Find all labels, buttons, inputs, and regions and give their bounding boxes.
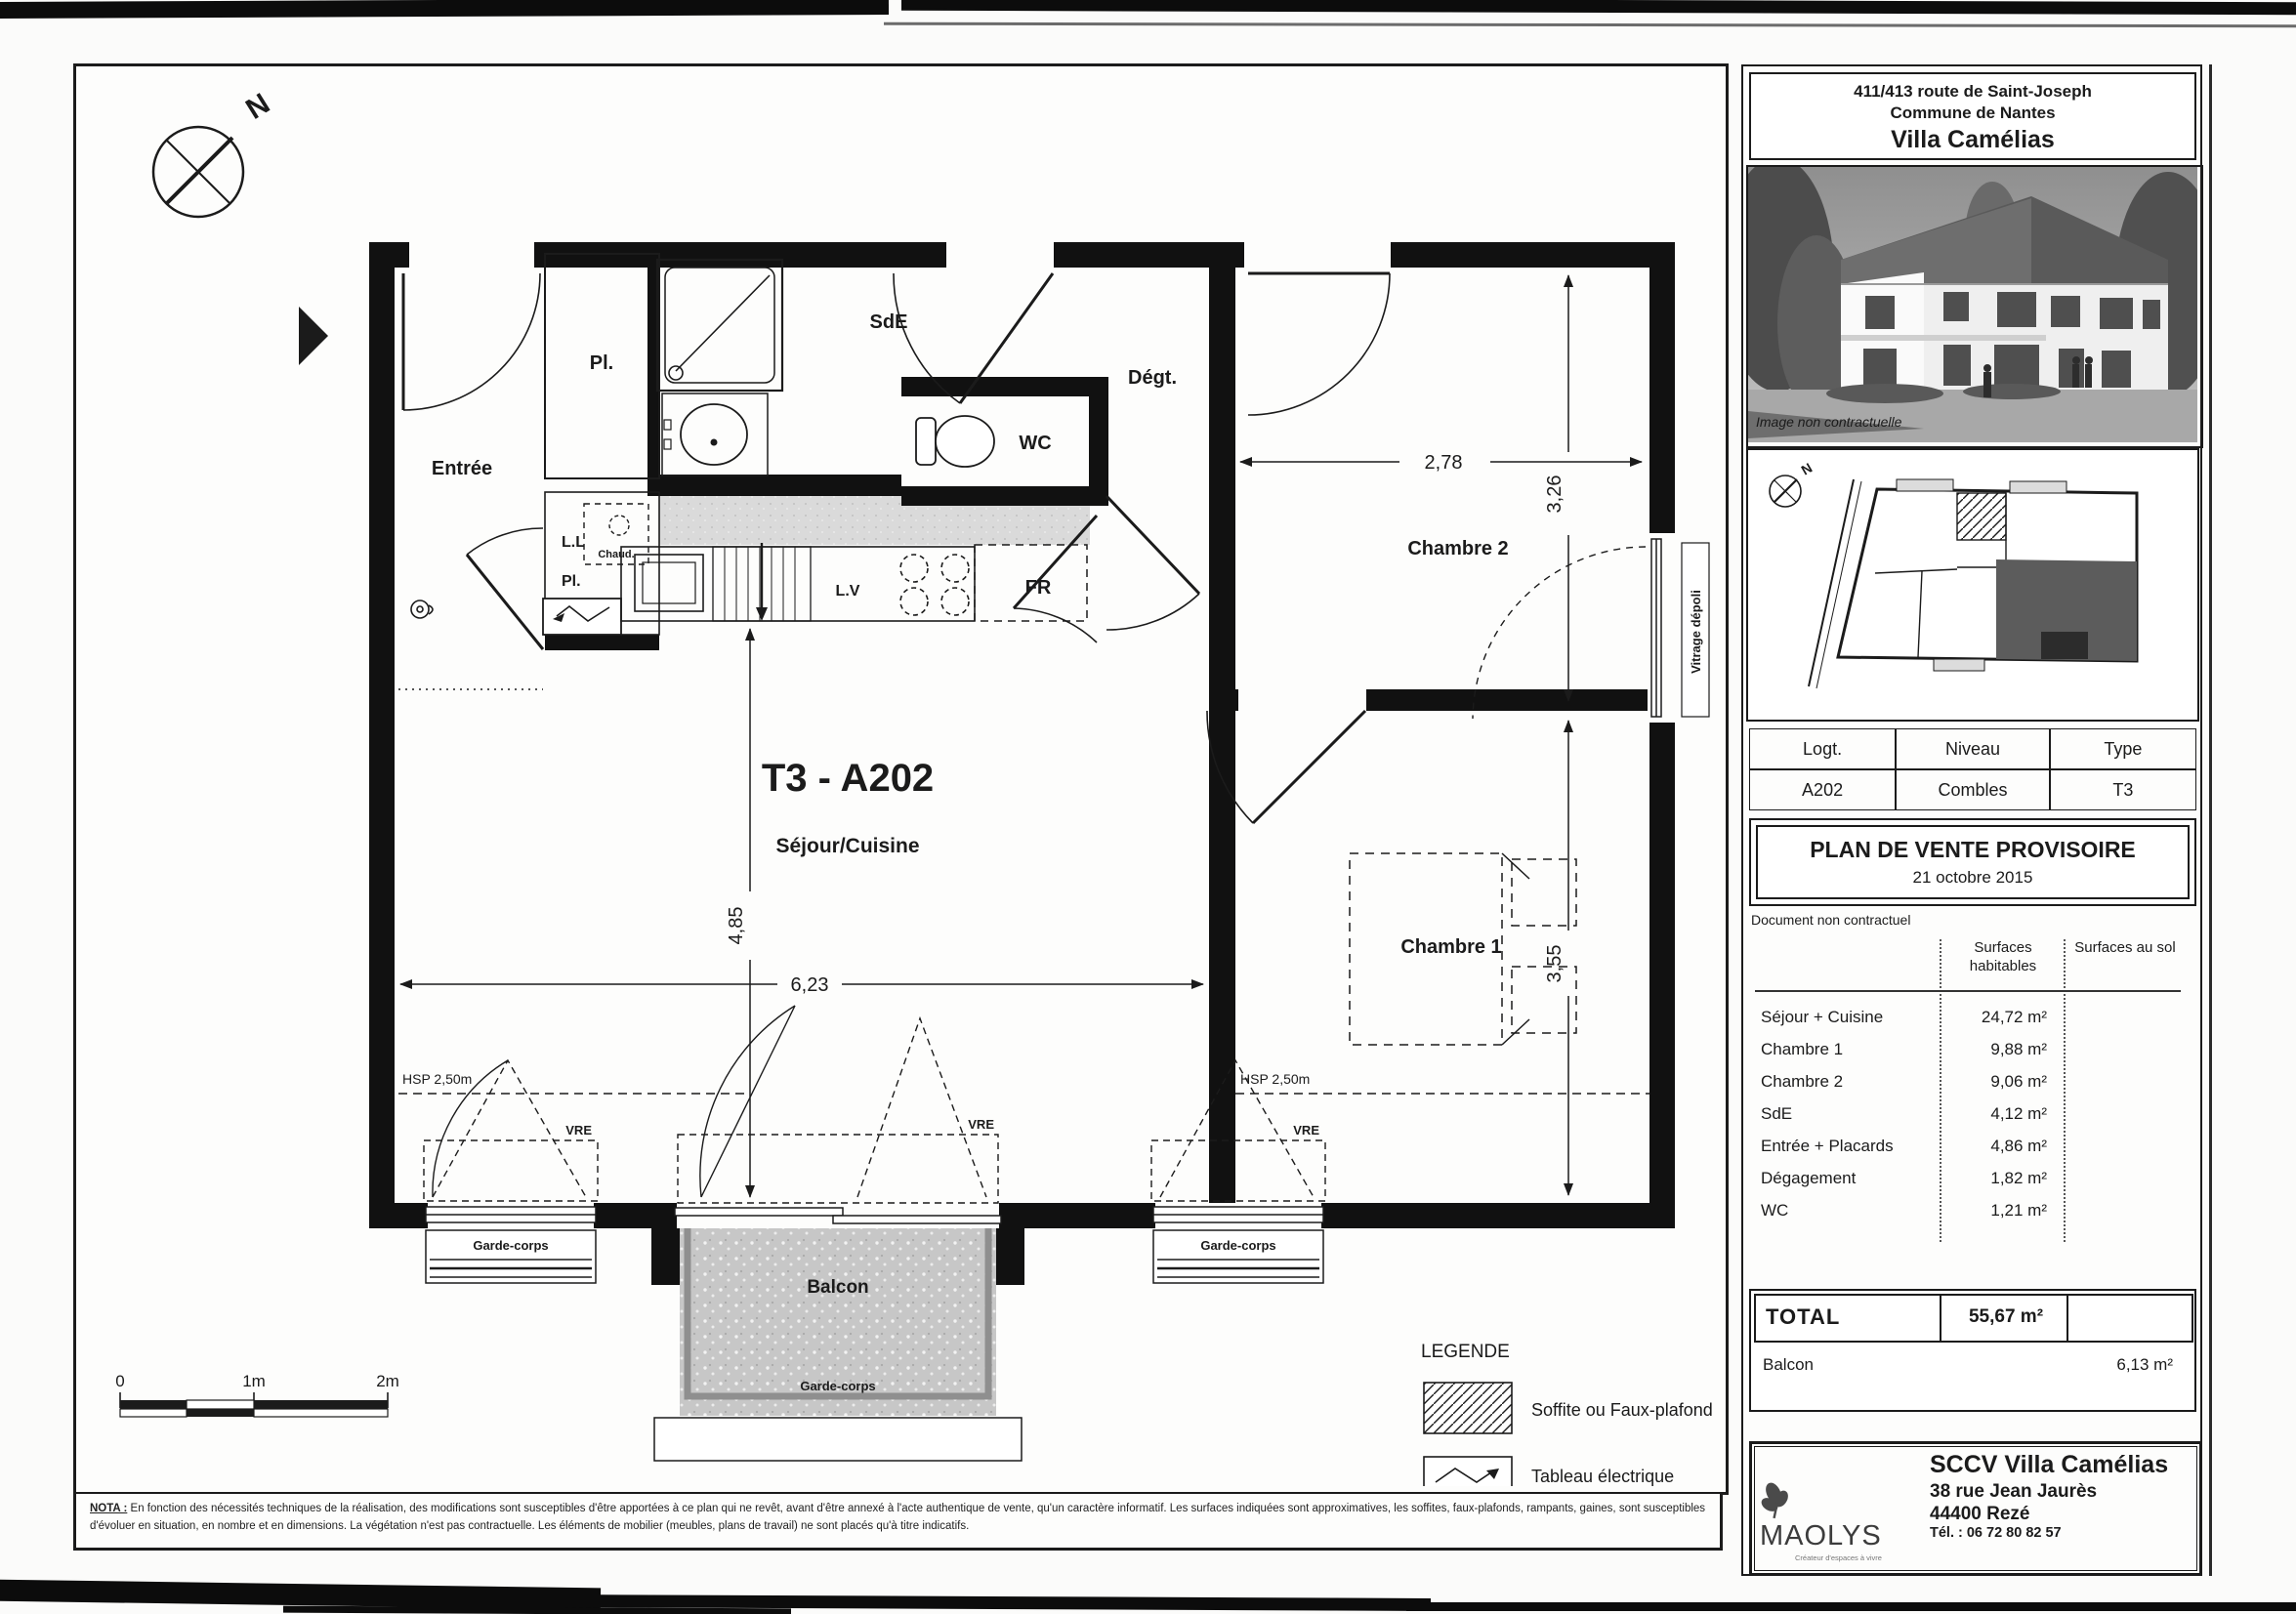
unit-title: T3 - A202	[762, 757, 934, 800]
building-photo: Image non contractuelle	[1746, 165, 2203, 448]
developer-street: 38 rue Jean Jaurès	[1930, 1480, 2168, 1503]
tableau-legend-icon	[1424, 1457, 1512, 1486]
kitchen-counter	[621, 543, 1087, 621]
garde-corps-left: Garde-corps	[426, 1230, 596, 1283]
attic-ladder-icon	[713, 543, 811, 621]
unit-table-value-niveau: Combles	[1896, 769, 2050, 810]
unit-table-header-logt: Logt.	[1749, 728, 1896, 769]
photo-caption: Image non contractuelle	[1756, 414, 1902, 430]
floor-plan-frame: N	[73, 63, 1729, 1495]
surface-row-value: 9,06 m²	[1896, 1072, 2047, 1092]
window-swings	[424, 1006, 1325, 1203]
total-row: TOTAL 55,67 m²	[1754, 1294, 2193, 1343]
legend: LEGENDE Soffite ou Faux-plafond Tableau …	[1421, 1342, 1713, 1486]
entree-symbol-icon	[411, 600, 433, 618]
dim-chambre2-width: 2,78	[1425, 452, 1463, 474]
room-label-degt: Dégt.	[1128, 367, 1177, 389]
developer-address: SCCV Villa Camélias 38 rue Jean Jaurès 4…	[1930, 1450, 2168, 1543]
surfaces-table: Surfaces habitables Surfaces au sol Séjo…	[1749, 935, 2196, 1285]
scan-artifact-bottom3	[1406, 1602, 2296, 1611]
toilet-icon	[916, 416, 994, 467]
developer-footer: MAOLYS Créateur d'espaces à vivre SCCV V…	[1749, 1441, 2202, 1576]
svg-text:Garde-corps: Garde-corps	[1200, 1238, 1275, 1253]
developer-phone: Tél. : 06 72 80 82 57	[1930, 1525, 2168, 1543]
nota-text-line1: En fonction des nécessités techniques de…	[131, 1503, 1577, 1514]
address-line2: Commune de Nantes	[1751, 103, 2194, 123]
svg-text:1m: 1m	[242, 1372, 266, 1390]
maolys-name: MAOLYS	[1760, 1520, 1882, 1552]
dim-chambre1-height: 3,55	[1544, 945, 1565, 983]
room-label-fr: FR	[1025, 577, 1052, 599]
total-label: TOTAL	[1766, 1304, 1840, 1330]
scan-artifact-top	[0, 0, 889, 19]
garde-corps-balcony-label: Garde-corps	[800, 1379, 875, 1393]
svg-text:Garde-corps: Garde-corps	[473, 1238, 548, 1253]
unit-table-header-niveau: Niveau	[1896, 728, 2050, 769]
balcony: Balcon Garde-corps	[654, 1228, 1022, 1461]
floor-plan-drawing: N	[76, 66, 1720, 1486]
legend-soffite-label: Soffite ou Faux-plafond	[1531, 1400, 1713, 1420]
surface-row-label: Séjour + Cuisine	[1761, 1008, 1883, 1027]
svg-text:Vitrage dépoli: Vitrage dépoli	[1689, 590, 1703, 674]
info-panel: 411/413 route de Saint-Joseph Commune de…	[1741, 64, 2202, 1576]
room-label-wc: WC	[1019, 433, 1051, 454]
sale-plan-title: PLAN DE VENTE PROVISOIRE	[1758, 837, 2188, 863]
address-line1: 411/413 route de Saint-Joseph	[1751, 82, 2194, 102]
shower-icon	[657, 260, 782, 391]
dim-sejour-width: 6,23	[791, 974, 829, 996]
surface-row-value: 24,72 m²	[1896, 1008, 2047, 1027]
dimensions	[400, 275, 1642, 1197]
maolys-logo: MAOLYS Créateur d'espaces à vivre	[1760, 1481, 1926, 1562]
hsp-label-right: HSP 2,50m	[1240, 1071, 1310, 1087]
vre-label-left: VRE	[565, 1123, 592, 1138]
developer-city: 44400 Rezé	[1930, 1503, 2168, 1525]
svg-text:0: 0	[115, 1372, 124, 1390]
scale-bar: 0 1m 2m	[115, 1372, 399, 1417]
surface-row-label: Dégagement	[1761, 1169, 1856, 1188]
unit-table-value-logt: A202	[1749, 769, 1896, 810]
room-label-entree: Entrée	[432, 458, 492, 479]
legend-title: LEGENDE	[1421, 1342, 1510, 1362]
developer-company: SCCV Villa Camélias	[1930, 1450, 2168, 1480]
balcony-area-label: Balcon	[1763, 1355, 1814, 1375]
surface-row-label: Chambre 2	[1761, 1072, 1843, 1092]
sink-icon	[662, 393, 768, 476]
key-plan-unit-dark	[2041, 632, 2088, 659]
sale-plan-date: 21 octobre 2015	[1758, 868, 2188, 888]
dim-chambre2-height: 3,26	[1544, 476, 1565, 514]
surface-row-value: 4,12 m²	[1896, 1104, 2047, 1124]
nota-label: NOTA :	[90, 1503, 127, 1514]
svg-text:2m: 2m	[376, 1372, 399, 1390]
door-swings	[403, 273, 1390, 823]
surface-row-label: SdE	[1761, 1104, 1792, 1124]
room-label-lv: L.V	[836, 583, 860, 600]
key-plan-box: N	[1746, 448, 2199, 722]
surface-row-value: 9,88 m²	[1896, 1040, 2047, 1059]
svg-text:N: N	[1799, 460, 1816, 478]
room-label-chambre2: Chambre 2	[1407, 538, 1508, 559]
total-box: TOTAL 55,67 m² Balcon 6,13 m²	[1749, 1289, 2196, 1412]
entrance-arrow-icon	[299, 307, 328, 365]
unit-table-value-type: T3	[2050, 769, 2196, 810]
key-plan-compass-icon: N	[1770, 460, 1815, 507]
disclaimer-text: Document non contractuel	[1751, 912, 1910, 928]
vre-label-balcony: VRE	[968, 1117, 994, 1132]
dim-sejour-height: 4,85	[726, 907, 747, 945]
hob-icon	[900, 555, 969, 615]
room-label-sejour: Séjour/Cuisine	[775, 835, 919, 857]
scan-artifact-top2	[901, 0, 2296, 15]
scan-edge-line	[2209, 64, 2212, 1576]
room-label-pl-top: Pl.	[590, 352, 613, 374]
unit-table: Logt. Niveau Type A202 Combles T3	[1749, 728, 2196, 810]
garde-corps-right: Garde-corps	[1153, 1230, 1323, 1283]
maolys-tagline: Créateur d'espaces à vivre	[1795, 1553, 1926, 1562]
surface-row-label: Chambre 1	[1761, 1040, 1843, 1059]
room-label-pl-bottom: Pl.	[562, 573, 581, 590]
surface-row-label: WC	[1761, 1201, 1788, 1221]
project-name: Villa Camélias	[1751, 126, 2194, 154]
unit-table-header-type: Type	[2050, 728, 2196, 769]
tableau-electrique-icon	[543, 599, 621, 635]
leaf-icon	[1760, 1481, 1793, 1520]
soffite-legend-icon	[1424, 1383, 1512, 1433]
surfaces-header-habitables: Surfaces habitables	[1944, 939, 2062, 976]
surface-row-value: 1,82 m²	[1896, 1169, 2047, 1188]
svg-text:N: N	[240, 87, 275, 125]
room-label-ll: L.L	[562, 534, 585, 551]
room-label-chaud: Chaud.	[598, 549, 634, 560]
vre-label-right: VRE	[1293, 1123, 1319, 1138]
scanned-sheet: N	[0, 0, 2296, 1614]
sale-plan-box: PLAN DE VENTE PROVISOIRE 21 octobre 2015	[1749, 818, 2196, 906]
balcony-area-value: 6,13 m²	[1995, 1355, 2173, 1375]
surface-row-value: 4,86 m²	[1896, 1137, 2047, 1156]
surfaces-header-sol: Surfaces au sol	[2071, 939, 2179, 958]
total-value: 55,67 m²	[1943, 1306, 2068, 1328]
room-label-balcon: Balcon	[807, 1277, 868, 1298]
surface-row-label: Entrée + Placards	[1761, 1137, 1894, 1156]
hsp-label-left: HSP 2,50m	[402, 1071, 472, 1087]
room-label-chambre1: Chambre 1	[1400, 936, 1501, 958]
project-address-box: 411/413 route de Saint-Joseph Commune de…	[1749, 72, 2196, 160]
nota-disclaimer: NOTA : En fonction des nécessités techni…	[73, 1492, 1723, 1551]
compass-icon: N	[153, 87, 275, 217]
scan-artifact-top3	[884, 22, 2296, 28]
room-label-sde: SdE	[870, 311, 908, 333]
legend-tableau-label: Tableau électrique	[1531, 1467, 1674, 1486]
surface-row-value: 1,21 m²	[1896, 1201, 2047, 1221]
